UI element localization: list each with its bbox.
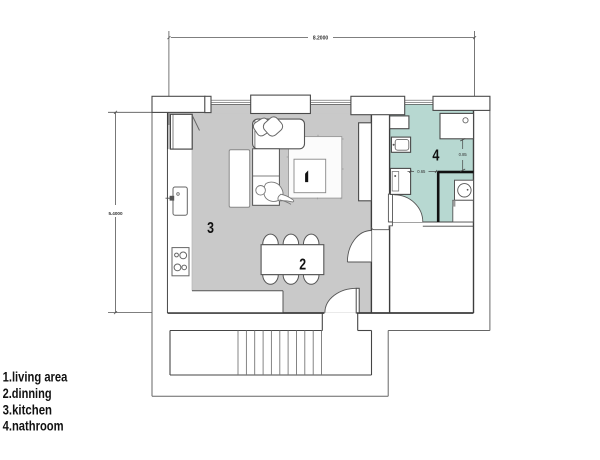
- svg-text:1.living area: 1.living area: [3, 370, 68, 385]
- svg-text:4.nathroom: 4.nathroom: [3, 419, 64, 434]
- svg-text:3: 3: [207, 219, 214, 237]
- svg-text:4: 4: [432, 147, 439, 165]
- svg-text:2.dinning: 2.dinning: [3, 386, 52, 401]
- svg-text:5.4000: 5.4000: [108, 211, 122, 216]
- svg-text:0.65: 0.65: [417, 169, 426, 174]
- svg-text:0.85: 0.85: [459, 152, 468, 157]
- svg-text:8.2000: 8.2000: [313, 36, 329, 42]
- svg-text:2: 2: [299, 255, 306, 273]
- svg-text:3.kitchen: 3.kitchen: [3, 402, 52, 417]
